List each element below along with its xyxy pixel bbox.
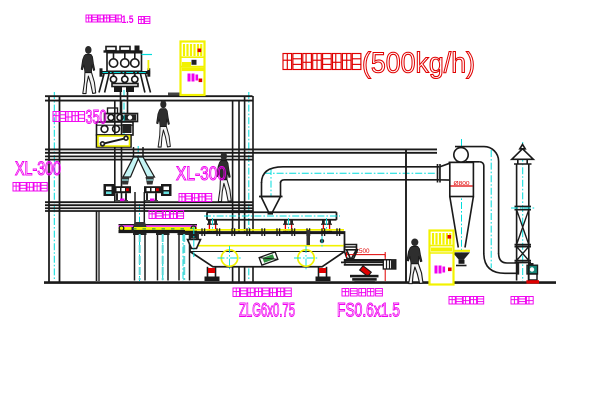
svg-text:XL-300: XL-300 <box>15 159 61 180</box>
svg-text:1.5: 1.5 <box>122 14 134 26</box>
svg-text:350: 350 <box>86 108 107 129</box>
svg-text:XL-300: XL-300 <box>176 164 226 185</box>
svg-text:ZLG6x0.75: ZLG6x0.75 <box>239 301 295 322</box>
svg-text:(500kg/h): (500kg/h) <box>362 48 475 80</box>
svg-text:Ø800: Ø800 <box>454 181 470 187</box>
svg-text:FS0.6x1.5: FS0.6x1.5 <box>337 301 400 322</box>
